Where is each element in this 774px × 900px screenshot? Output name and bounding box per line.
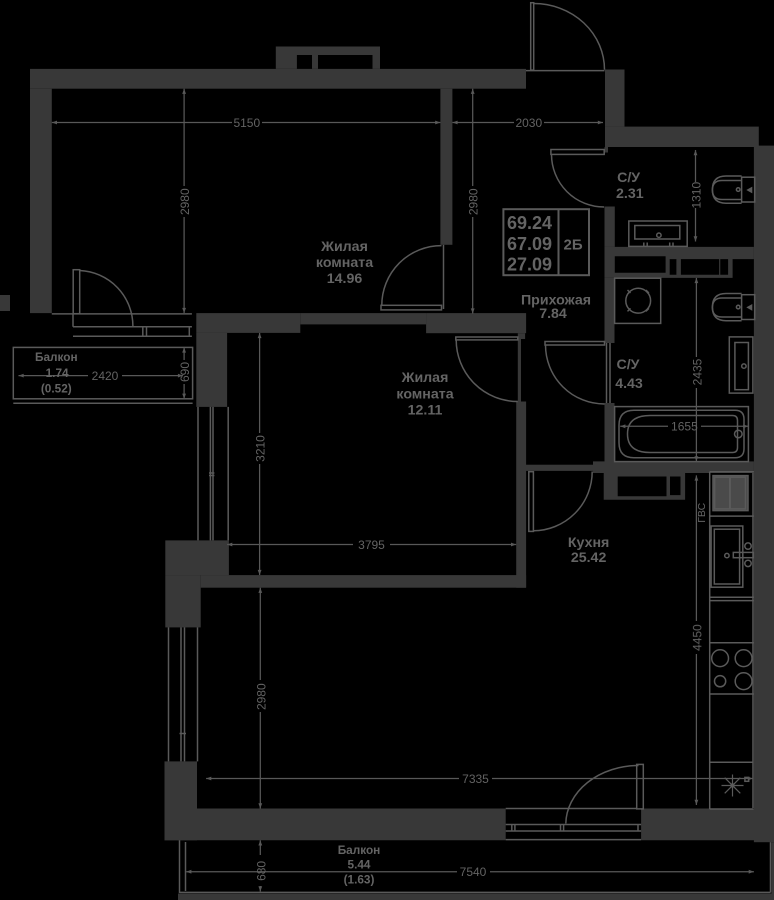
svg-text:680: 680 bbox=[254, 861, 268, 881]
svg-text:Кухня: Кухня bbox=[568, 535, 609, 551]
svg-text:Жилая: Жилая bbox=[320, 239, 368, 255]
svg-text:4450: 4450 bbox=[690, 624, 704, 651]
svg-text:Жилая: Жилая bbox=[401, 370, 449, 386]
svg-text:2980: 2980 bbox=[467, 188, 481, 215]
svg-text:25.42: 25.42 bbox=[571, 550, 607, 566]
svg-text:2980: 2980 bbox=[178, 188, 192, 215]
svg-text:67.09: 67.09 bbox=[507, 234, 552, 254]
svg-text:С/У: С/У bbox=[617, 170, 640, 186]
svg-text:5.44: 5.44 bbox=[348, 858, 371, 872]
svg-text:С/У: С/У bbox=[616, 357, 639, 373]
svg-text:ГВС: ГВС bbox=[696, 502, 708, 522]
svg-text:4.43: 4.43 bbox=[615, 376, 643, 392]
svg-text:комната: комната bbox=[396, 387, 453, 403]
svg-text:2030: 2030 bbox=[515, 116, 542, 130]
svg-text:27.09: 27.09 bbox=[507, 255, 552, 275]
svg-text:3210: 3210 bbox=[254, 435, 268, 462]
svg-text:1.74: 1.74 bbox=[46, 366, 69, 380]
svg-text:2.31: 2.31 bbox=[616, 186, 644, 202]
svg-text:7.84: 7.84 bbox=[539, 306, 567, 322]
svg-text:комната: комната bbox=[316, 255, 373, 271]
svg-text:690: 690 bbox=[178, 362, 192, 382]
svg-text:Балкон: Балкон bbox=[338, 843, 381, 857]
svg-text:2980: 2980 bbox=[254, 683, 268, 710]
svg-text:1310: 1310 bbox=[690, 182, 704, 209]
svg-text:1655: 1655 bbox=[671, 420, 698, 434]
svg-text:Балкон: Балкон bbox=[35, 350, 78, 364]
svg-text:5150: 5150 bbox=[233, 116, 260, 130]
svg-text:3795: 3795 bbox=[358, 538, 385, 552]
svg-text:2435: 2435 bbox=[690, 358, 704, 385]
svg-text:(1.63): (1.63) bbox=[344, 873, 375, 887]
svg-text:7335: 7335 bbox=[462, 772, 489, 786]
svg-text:7540: 7540 bbox=[460, 865, 487, 879]
svg-text:14.96: 14.96 bbox=[327, 271, 363, 287]
svg-text:(0.52): (0.52) bbox=[41, 382, 72, 396]
svg-text:2420: 2420 bbox=[92, 369, 119, 383]
svg-text:12.11: 12.11 bbox=[408, 403, 443, 419]
svg-text:2Б: 2Б bbox=[564, 237, 583, 254]
svg-text:69.24: 69.24 bbox=[507, 213, 552, 233]
